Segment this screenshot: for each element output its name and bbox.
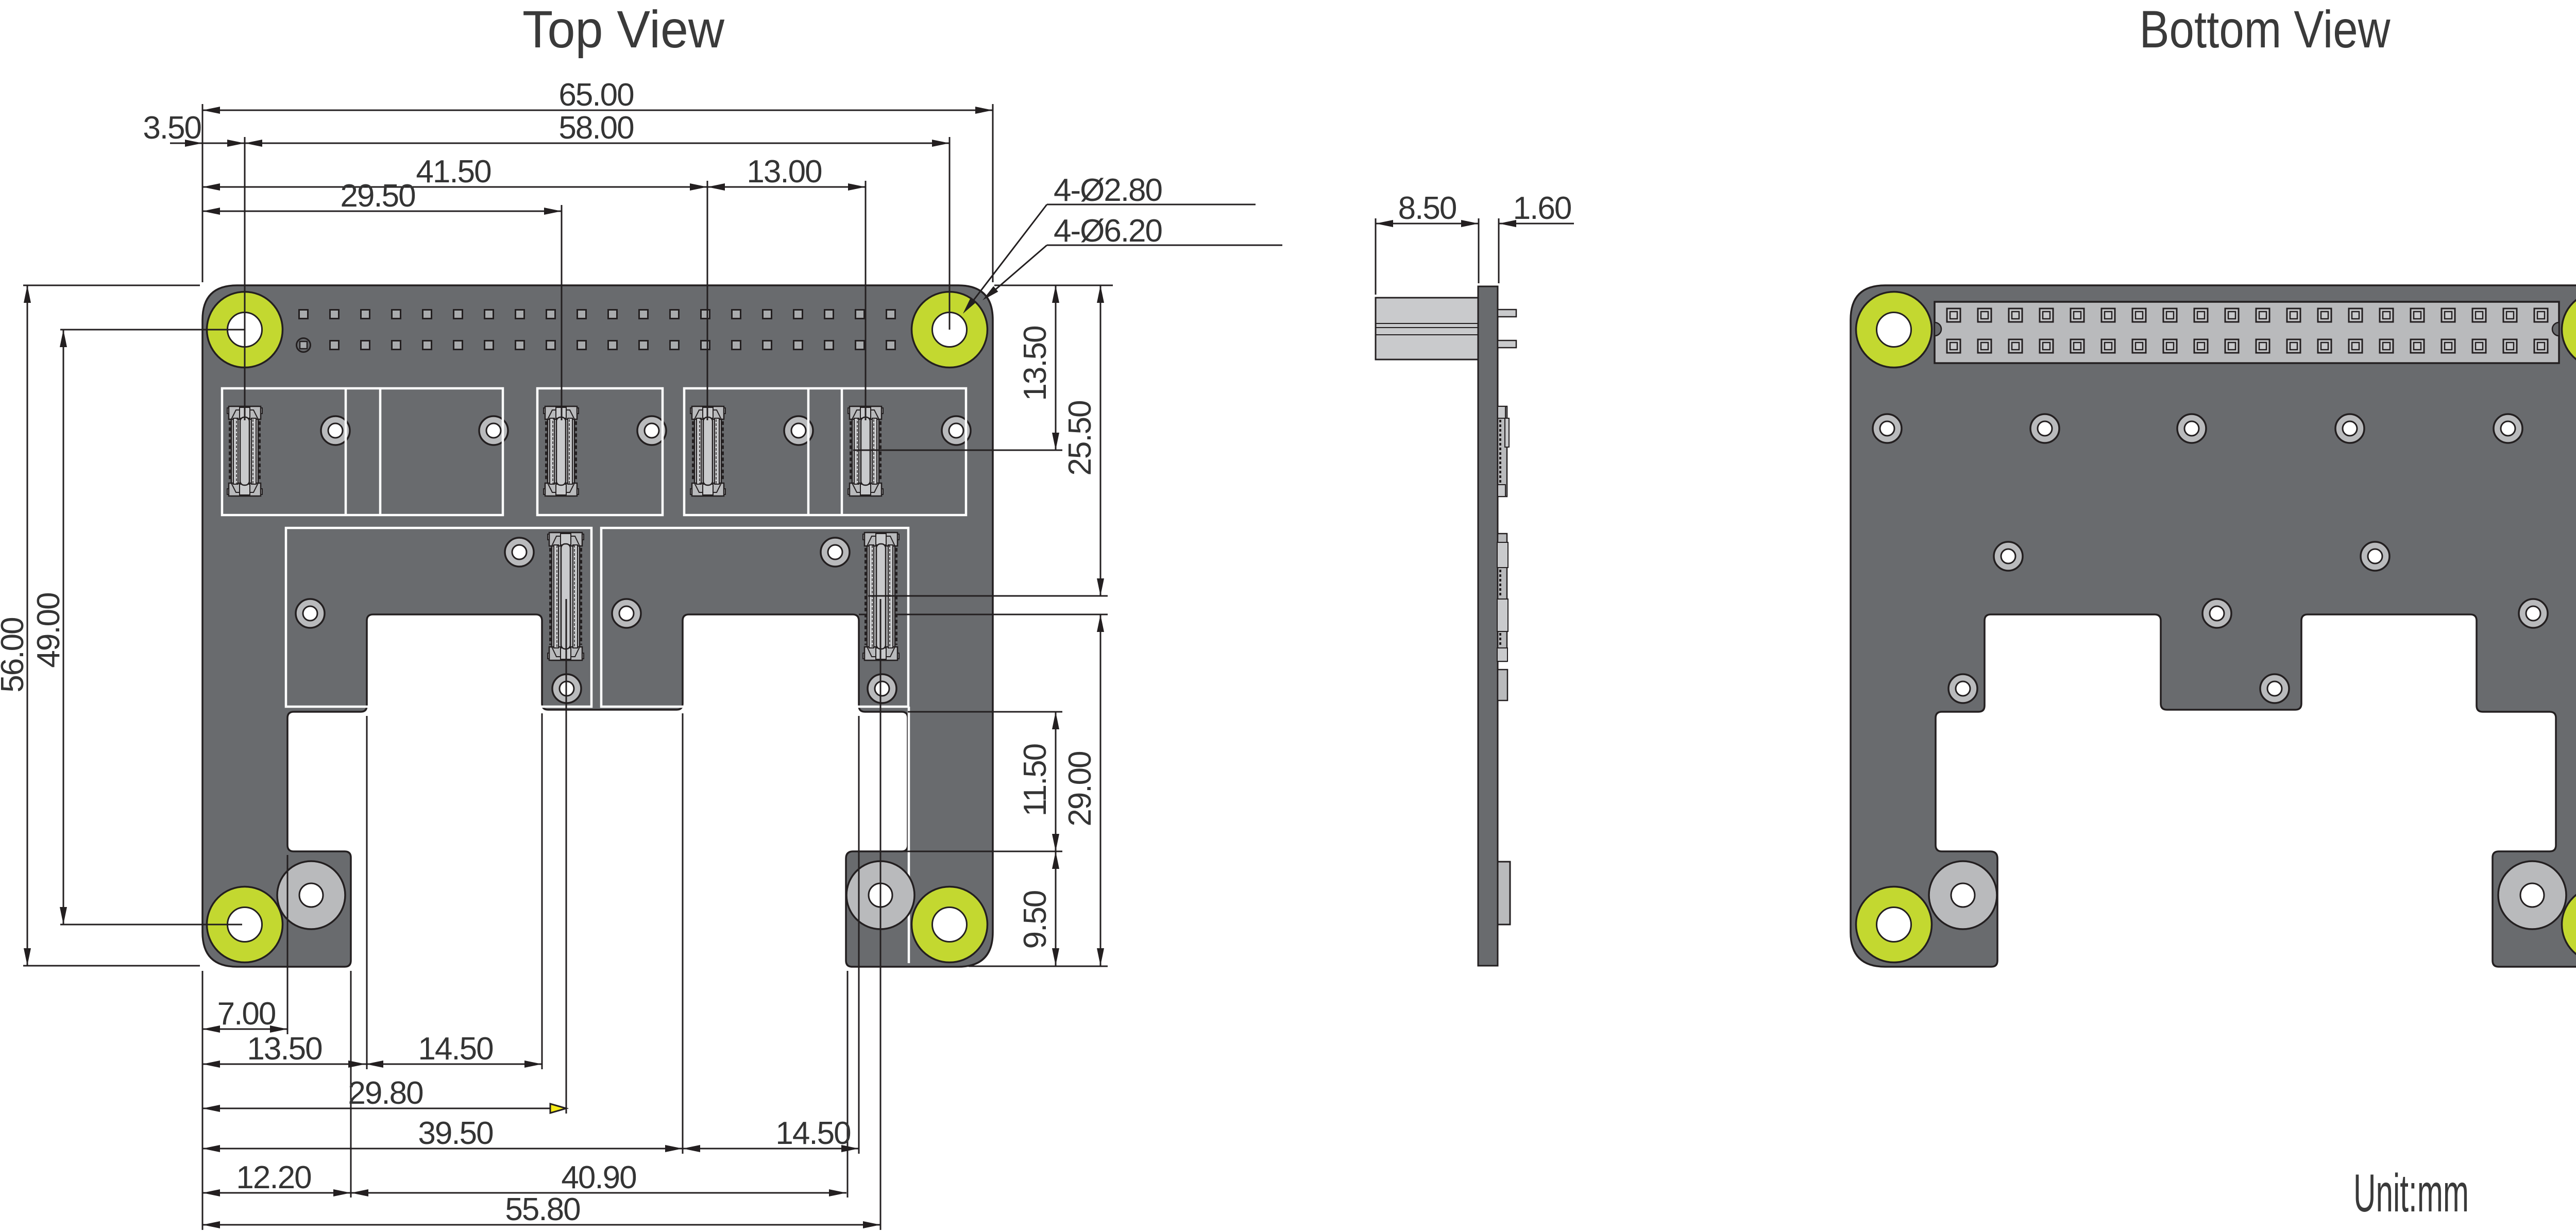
svg-text:12.20: 12.20: [236, 1160, 311, 1195]
svg-text:4-Ø2.80: 4-Ø2.80: [1054, 173, 1162, 208]
svg-text:29.00: 29.00: [1062, 751, 1098, 827]
svg-text:Bottom View: Bottom View: [2140, 0, 2391, 59]
svg-text:39.50: 39.50: [418, 1116, 493, 1151]
svg-text:4-Ø6.20: 4-Ø6.20: [1054, 213, 1162, 249]
svg-text:29.80: 29.80: [348, 1075, 423, 1111]
svg-text:3.50: 3.50: [143, 110, 201, 146]
svg-text:14.50: 14.50: [418, 1031, 493, 1067]
svg-text:13.50: 13.50: [247, 1031, 322, 1067]
svg-text:40.90: 40.90: [561, 1160, 636, 1195]
svg-text:41.50: 41.50: [416, 154, 491, 190]
svg-text:14.50: 14.50: [775, 1116, 851, 1151]
svg-text:7.00: 7.00: [217, 996, 276, 1032]
svg-text:55.80: 55.80: [505, 1192, 580, 1227]
svg-text:25.50: 25.50: [1062, 401, 1098, 476]
svg-text:29.50: 29.50: [340, 178, 415, 214]
svg-text:58.00: 58.00: [558, 110, 634, 146]
svg-text:65.00: 65.00: [558, 77, 634, 113]
svg-text:13.00: 13.00: [747, 154, 822, 190]
svg-text:13.50: 13.50: [1018, 326, 1053, 401]
svg-text:11.50: 11.50: [1018, 744, 1053, 816]
svg-text:8.50: 8.50: [1398, 191, 1456, 226]
svg-text:1.60: 1.60: [1513, 191, 1571, 226]
svg-text:56.00: 56.00: [0, 618, 30, 693]
svg-text:Top View: Top View: [522, 0, 724, 59]
svg-text:Unit:mm: Unit:mm: [2353, 1163, 2469, 1223]
svg-text:9.50: 9.50: [1018, 891, 1053, 949]
svg-text:49.00: 49.00: [31, 593, 66, 668]
